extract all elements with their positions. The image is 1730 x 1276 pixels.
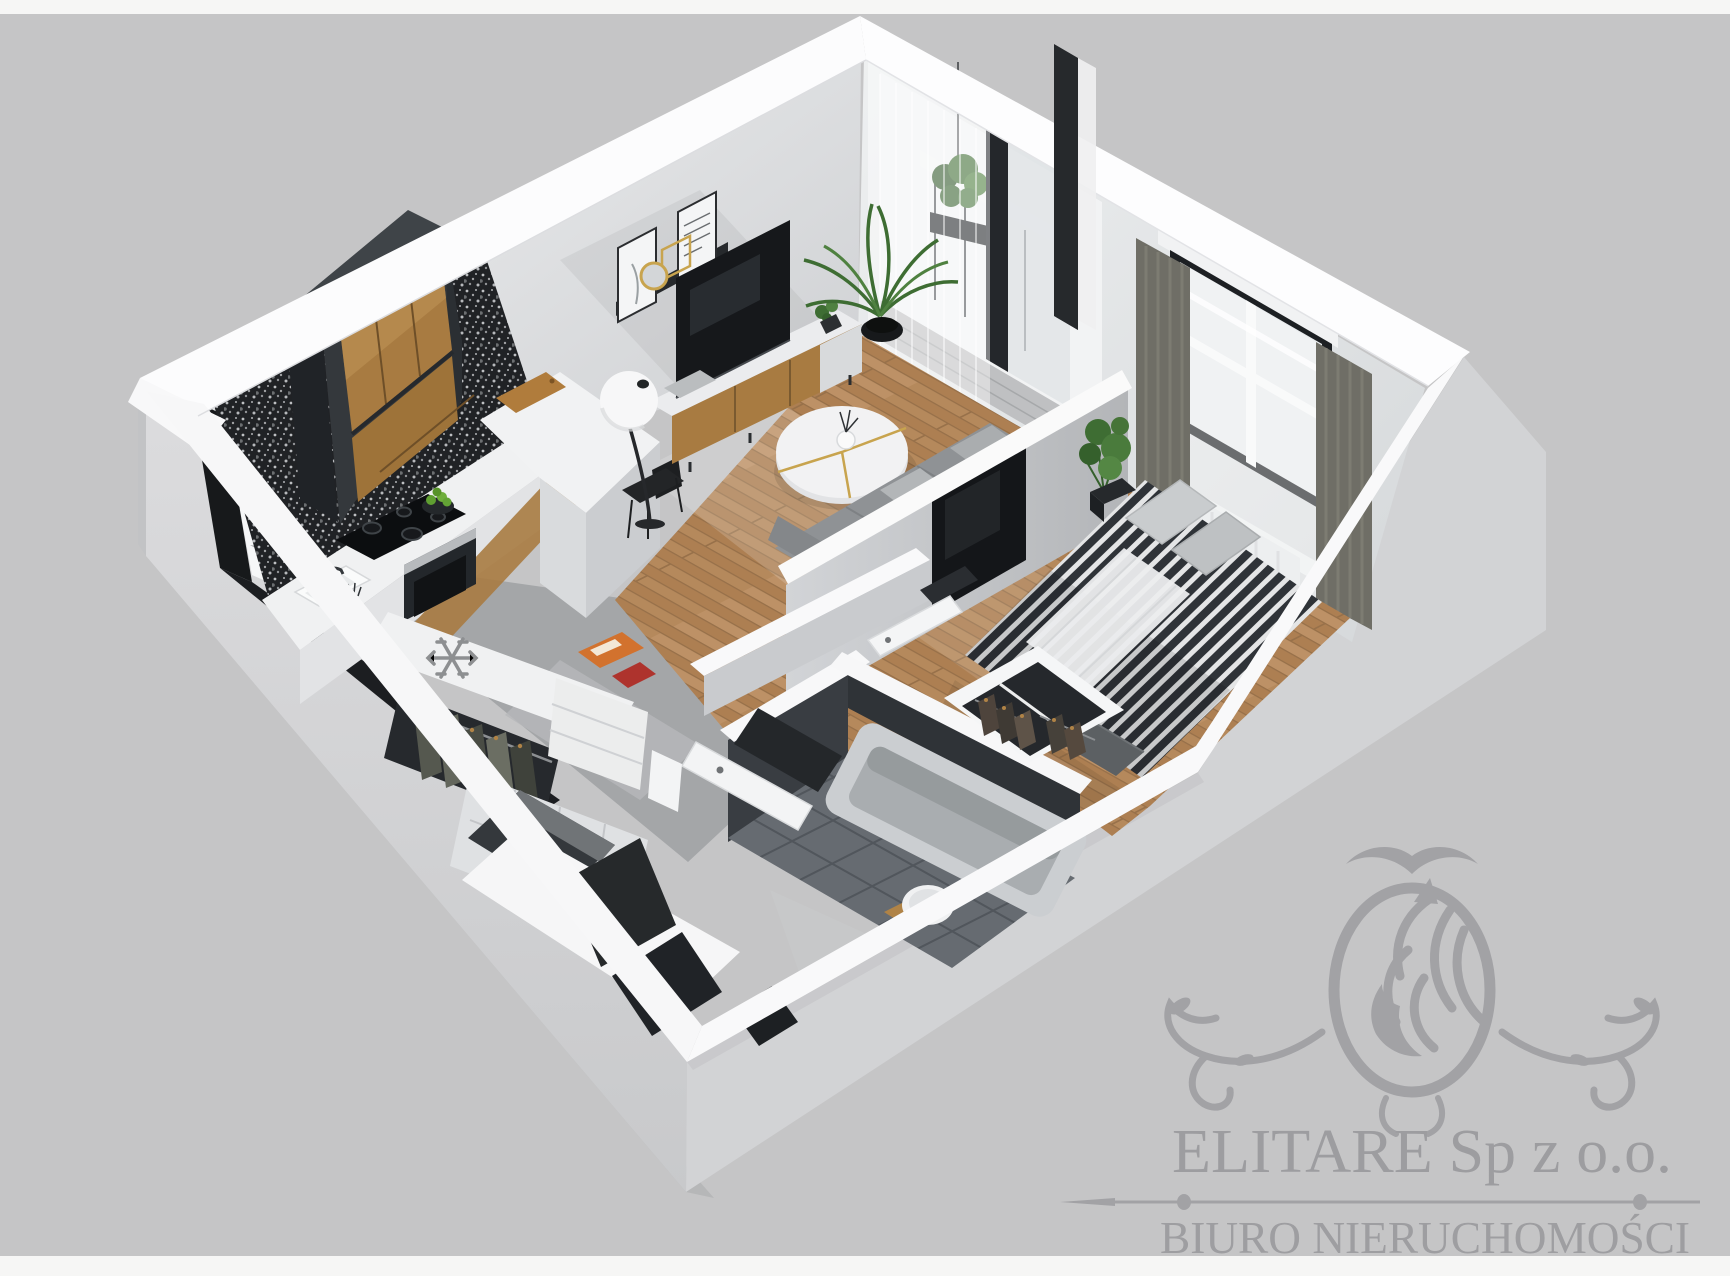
balcony-frame-above-band	[1054, 44, 1078, 330]
watermark-subtitle: BIURO NIERUCHOMOŚCI	[1160, 1212, 1690, 1263]
watermark-company: ELITARE Sp z o.o.	[1172, 1118, 1672, 1186]
bottom-strip	[0, 1256, 1730, 1276]
top-strip	[0, 0, 1730, 14]
curtain-right	[1316, 342, 1372, 630]
floorplan-render: ELITARE Sp z o.o. BIURO NIERUCHOMOŚCI	[0, 0, 1730, 1276]
table-vase	[837, 431, 855, 449]
round-mirror	[641, 263, 667, 289]
